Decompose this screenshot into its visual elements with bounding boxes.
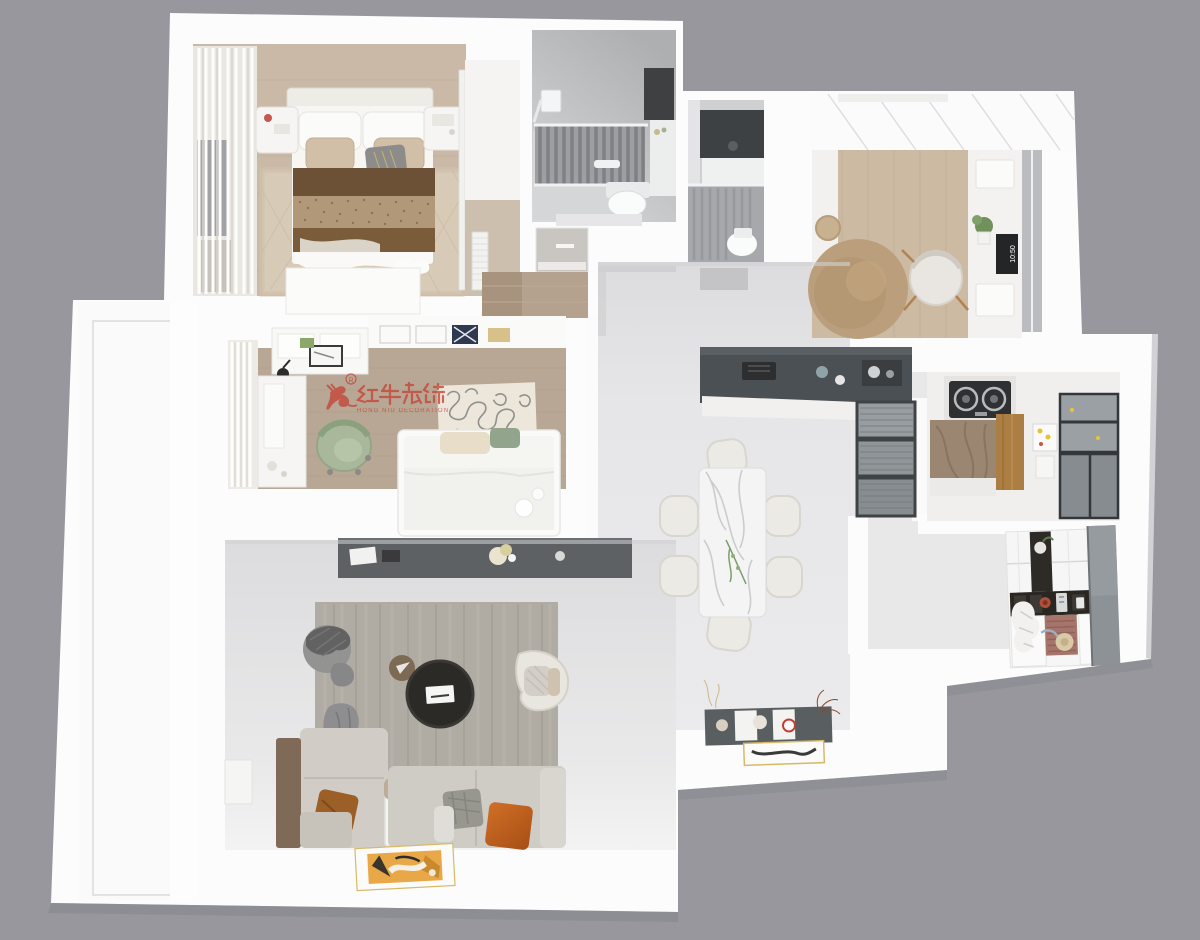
- svg-text:10:50: 10:50: [1010, 245, 1017, 263]
- svg-text:HONG NIU DECORATION: HONG NIU DECORATION: [357, 408, 449, 414]
- svg-text:R: R: [348, 378, 353, 385]
